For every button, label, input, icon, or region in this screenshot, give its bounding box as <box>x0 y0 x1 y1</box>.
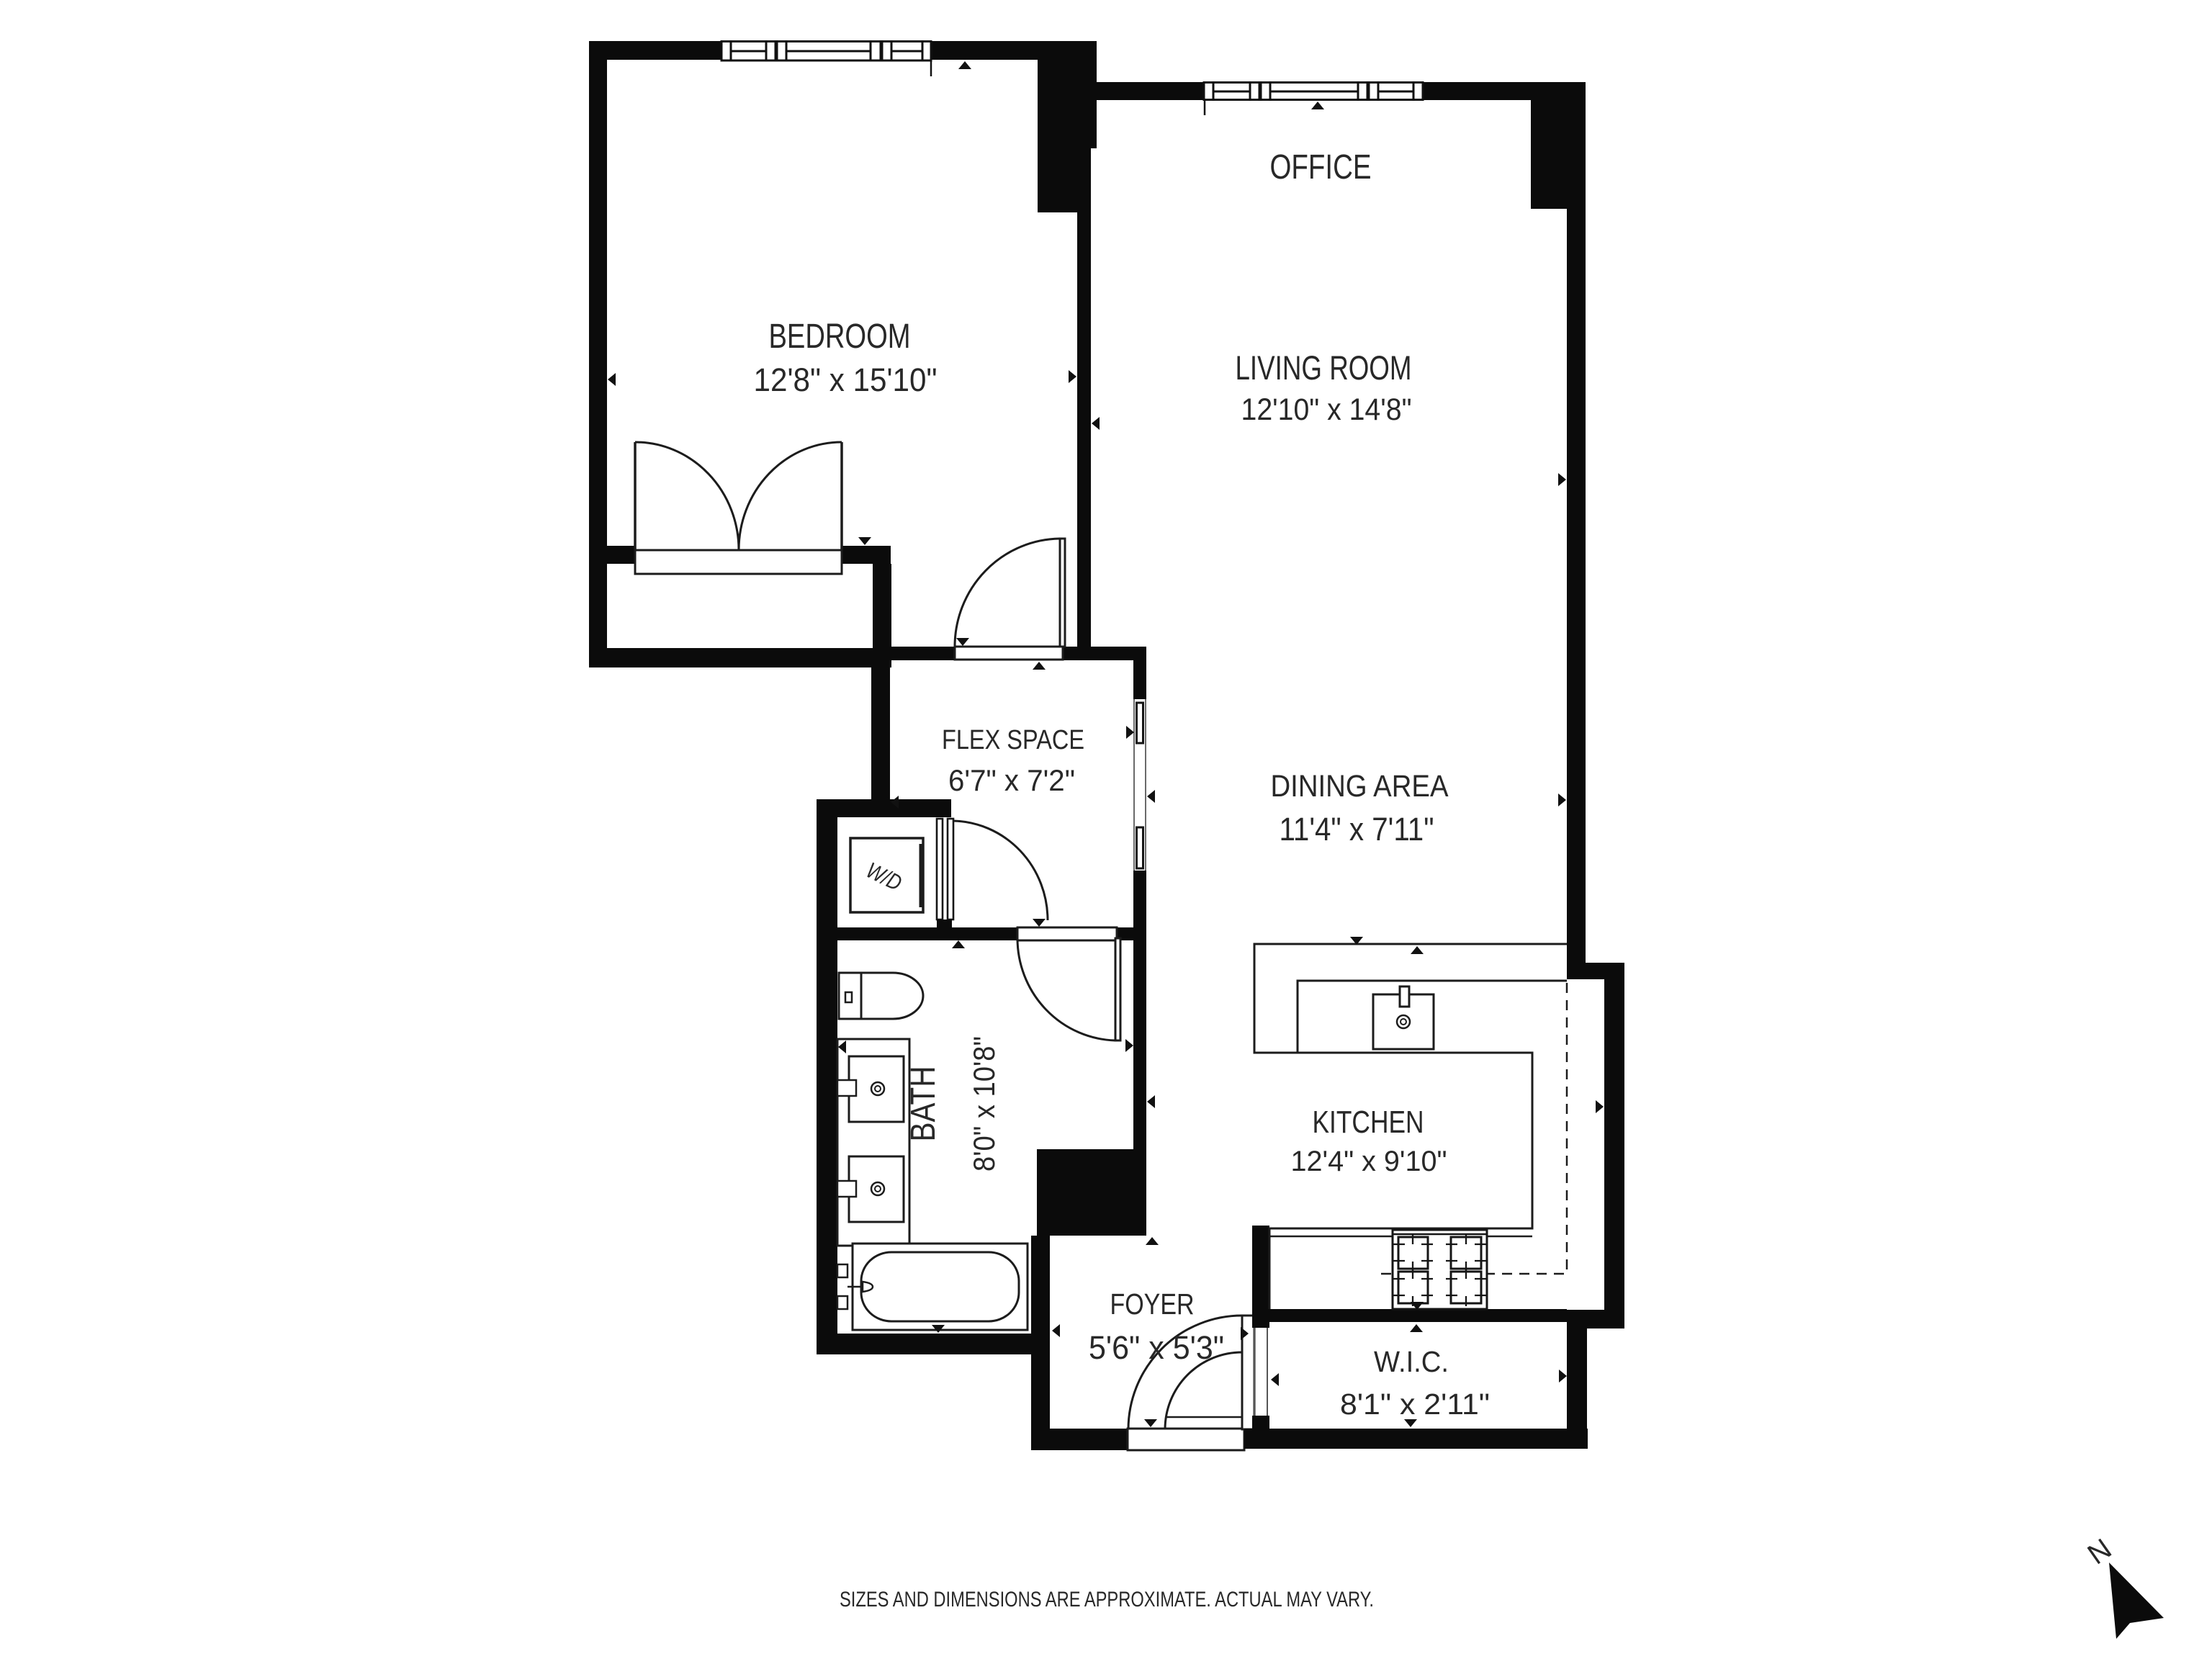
svg-text:5'6" x 5'3": 5'6" x 5'3" <box>1089 1329 1224 1366</box>
svg-text:DINING AREA: DINING AREA <box>1271 769 1449 804</box>
svg-text:KITCHEN: KITCHEN <box>1313 1105 1424 1140</box>
svg-text:FLEX SPACE: FLEX SPACE <box>942 725 1084 755</box>
svg-text:SIZES AND DIMENSIONS ARE APPRO: SIZES AND DIMENSIONS ARE APPROXIMATE. AC… <box>840 1588 1374 1611</box>
svg-text:12'4" x 9'10": 12'4" x 9'10" <box>1291 1146 1447 1177</box>
svg-text:LIVING ROOM: LIVING ROOM <box>1236 349 1412 387</box>
svg-text:OFFICE: OFFICE <box>1270 148 1372 186</box>
svg-text:12'10" x 14'8": 12'10" x 14'8" <box>1241 392 1412 427</box>
svg-text:8'1" x 2'11": 8'1" x 2'11" <box>1340 1388 1490 1421</box>
svg-text:6'7" x 7'2": 6'7" x 7'2" <box>948 763 1075 797</box>
svg-text:BEDROOM: BEDROOM <box>769 318 911 356</box>
svg-text:BATH: BATH <box>904 1066 943 1142</box>
svg-text:W.I.C.: W.I.C. <box>1374 1345 1449 1378</box>
svg-text:8'0" x 10'8": 8'0" x 10'8" <box>967 1036 1001 1172</box>
svg-text:12'8" x 15'10": 12'8" x 15'10" <box>754 361 938 398</box>
svg-text:11'4" x 7'11": 11'4" x 7'11" <box>1280 811 1434 848</box>
svg-text:FOYER: FOYER <box>1110 1287 1195 1321</box>
